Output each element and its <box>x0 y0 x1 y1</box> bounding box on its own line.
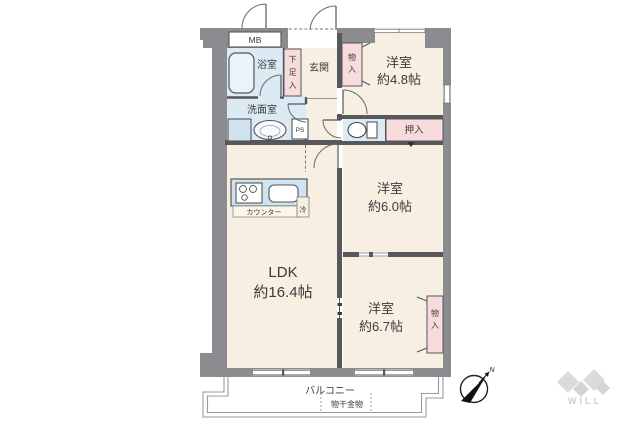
wall-top-right-a <box>337 28 375 43</box>
will-logo-icon: WILL <box>557 369 610 406</box>
room67-name: 洋室 <box>368 301 394 316</box>
toilet-tank <box>367 122 377 138</box>
toilet-bowl <box>348 123 366 138</box>
window-room67-tick <box>383 370 385 376</box>
porch-door-left-swing <box>242 4 266 28</box>
compass-north-label: N <box>489 367 495 374</box>
room48-size: 約4.8帖 <box>377 72 421 87</box>
compass: N <box>461 367 496 403</box>
entrance-label: 玄関 <box>309 61 329 74</box>
entrance-door-swing <box>310 6 336 30</box>
refrigerator-label: 冷 <box>300 205 307 214</box>
shoe-closet-label: 下足入 <box>289 55 297 90</box>
counter-label: カウンター <box>247 208 282 217</box>
logo-text: WILL <box>568 396 602 406</box>
ldk-size: 約16.4帖 <box>253 284 312 301</box>
floorplan-drawing: N WILL MB 浴室 下足入 玄関 物入 洋室 約4.8帖 洗面室 PS 押… <box>0 0 640 427</box>
balcony-label: バルコニー <box>305 385 355 397</box>
wall-divider-right <box>388 252 443 257</box>
wall-center-d <box>337 168 342 298</box>
room48-name: 洋室 <box>386 55 412 70</box>
room60-size: 約6.0帖 <box>368 199 412 214</box>
room67-door-tick-1 <box>338 303 343 306</box>
room67-door-tick-2 <box>338 312 343 315</box>
balcony-rail-outer <box>203 377 443 417</box>
wall-divider-tick <box>369 252 373 257</box>
room67-size: 約6.7帖 <box>359 319 403 334</box>
wall-center-e <box>337 318 342 368</box>
ldk-name: LDK <box>268 264 297 281</box>
meter-box-label: MB <box>249 35 262 45</box>
wall-divider-left <box>343 252 359 257</box>
wall-center-a <box>337 33 342 88</box>
wall-room48-bottom <box>337 115 443 119</box>
bath-label: 浴室 <box>257 58 277 71</box>
kitchen-sink <box>269 185 298 202</box>
wall-divider-thin <box>359 253 388 256</box>
laundry-fitting-label: 物干金物 <box>331 399 363 409</box>
room60-name: 洋室 <box>377 181 403 196</box>
floorplan-page: N WILL MB 浴室 下足入 玄関 物入 洋室 約4.8帖 洗面室 PS 押… <box>0 0 640 427</box>
washroom-label: 洗面室 <box>247 103 277 116</box>
wall-bottom <box>200 368 451 377</box>
window-ldk-tick <box>282 370 284 376</box>
balcony <box>203 377 443 417</box>
oshiire-label: 押入 <box>404 124 424 136</box>
washing-machine-space <box>228 119 251 141</box>
pipe-space-label: PS <box>296 127 305 134</box>
bathtub <box>229 53 254 93</box>
wall-left <box>212 48 227 353</box>
ldk-area <box>225 143 337 368</box>
wall-toilet-bottom <box>337 141 443 145</box>
stove <box>236 183 262 203</box>
